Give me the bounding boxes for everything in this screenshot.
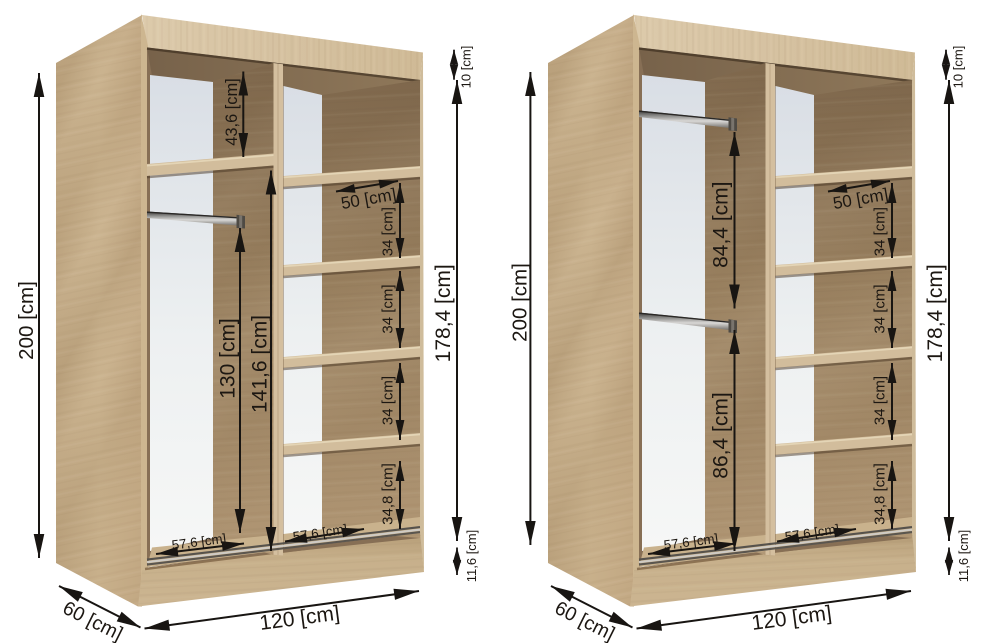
svg-text:34 [cm]: 34 [cm] xyxy=(872,376,889,425)
svg-text:34 [cm]: 34 [cm] xyxy=(380,284,397,333)
svg-text:34 [cm]: 34 [cm] xyxy=(380,207,397,256)
svg-text:10 [cm]: 10 [cm] xyxy=(951,46,966,89)
svg-text:200 [cm]: 200 [cm] xyxy=(15,281,38,360)
svg-text:34,8 [cm]: 34,8 [cm] xyxy=(380,463,397,525)
svg-text:11,6 [cm]: 11,6 [cm] xyxy=(956,530,971,583)
svg-text:178,4 [cm]: 178,4 [cm] xyxy=(924,264,947,362)
svg-text:34,8 [cm]: 34,8 [cm] xyxy=(872,463,889,525)
svg-text:43,6 [cm]: 43,6 [cm] xyxy=(223,78,241,145)
svg-text:178,4 [cm]: 178,4 [cm] xyxy=(432,264,455,362)
svg-text:11,6 [cm]: 11,6 [cm] xyxy=(464,530,479,583)
svg-text:10 [cm]: 10 [cm] xyxy=(459,46,474,89)
svg-text:86,4 [cm]: 86,4 [cm] xyxy=(709,392,732,478)
svg-text:84,4 [cm]: 84,4 [cm] xyxy=(709,182,732,268)
svg-text:141,6 [cm]: 141,6 [cm] xyxy=(248,315,271,413)
svg-text:34 [cm]: 34 [cm] xyxy=(872,207,889,256)
svg-text:34 [cm]: 34 [cm] xyxy=(872,284,889,333)
svg-text:34 [cm]: 34 [cm] xyxy=(380,376,397,425)
svg-text:130 [cm]: 130 [cm] xyxy=(216,318,239,399)
svg-text:200 [cm]: 200 [cm] xyxy=(509,263,532,342)
